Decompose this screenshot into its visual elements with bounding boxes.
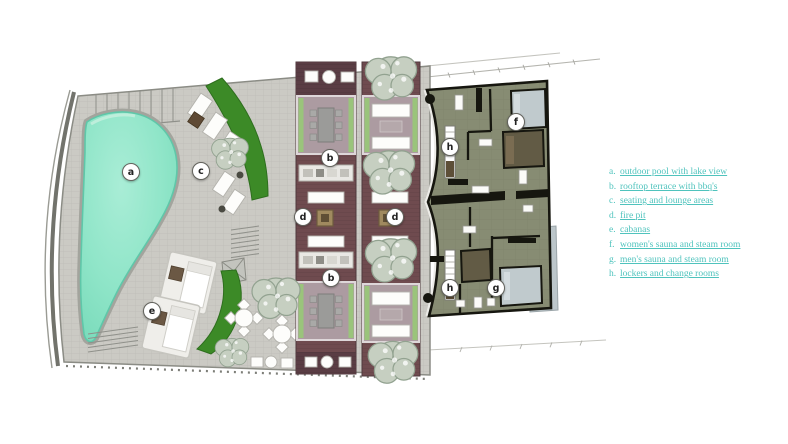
plan-marker-h2: h xyxy=(441,279,459,297)
legend-label: women's sauna and steam room xyxy=(620,240,740,250)
legend-label: fire pit xyxy=(620,211,646,221)
legend-key: g. xyxy=(609,253,620,268)
legend-item-e[interactable]: e.cabanas xyxy=(609,223,774,238)
legend-item-c[interactable]: c.seating and lounge areas xyxy=(609,194,774,209)
legend-key: c. xyxy=(609,194,620,209)
plan-marker-d1: d xyxy=(294,208,312,226)
column xyxy=(423,293,433,303)
legend-key: d. xyxy=(609,209,620,224)
plan-marker-e: e xyxy=(143,302,161,320)
plan-marker-b2: b xyxy=(322,269,340,287)
roof-edge-lines xyxy=(427,53,600,78)
sauna-men xyxy=(461,249,491,282)
legend-item-h[interactable]: h.lockers and change rooms xyxy=(609,267,774,282)
legend-label: lockers and change rooms xyxy=(620,269,719,279)
plan-marker-b1: b xyxy=(321,149,339,167)
legend: a.outdoor pool with lake view b.rooftop … xyxy=(609,165,774,282)
sitting-group xyxy=(251,356,293,368)
plan-marker-a: a xyxy=(122,163,140,181)
legend-item-d[interactable]: d.fire pit xyxy=(609,209,774,224)
column xyxy=(425,94,435,104)
legend-item-b[interactable]: b.rooftop terrace with bbq's xyxy=(609,180,774,195)
legend-item-g[interactable]: g.men's sauna and steam room xyxy=(609,253,774,268)
legend-label: cabanas xyxy=(620,225,650,235)
plan-marker-h1: h xyxy=(441,138,459,156)
lower-dimension-line xyxy=(428,340,606,352)
legend-label: seating and lounge areas xyxy=(620,196,713,206)
legend-label: outdoor pool with lake view xyxy=(620,167,727,177)
legend-key: f. xyxy=(609,238,620,253)
legend-key: e. xyxy=(609,223,620,238)
legend-label: men's sauna and steam room xyxy=(620,255,729,265)
plan-marker-g: g xyxy=(487,279,505,297)
plan-marker-d2: d xyxy=(386,208,404,226)
plan-marker-c: c xyxy=(192,162,210,180)
legend-item-a[interactable]: a.outdoor pool with lake view xyxy=(609,165,774,180)
floor-plan: a b b c d d e f g h h a.outdoor pool wit… xyxy=(0,0,788,444)
legend-key: b. xyxy=(609,180,620,195)
legend-item-f[interactable]: f.women's sauna and steam room xyxy=(609,238,774,253)
legend-key: h. xyxy=(609,267,620,282)
plan-marker-f: f xyxy=(507,113,525,131)
legend-label: rooftop terrace with bbq's xyxy=(620,182,717,192)
legend-key: a. xyxy=(609,165,620,180)
